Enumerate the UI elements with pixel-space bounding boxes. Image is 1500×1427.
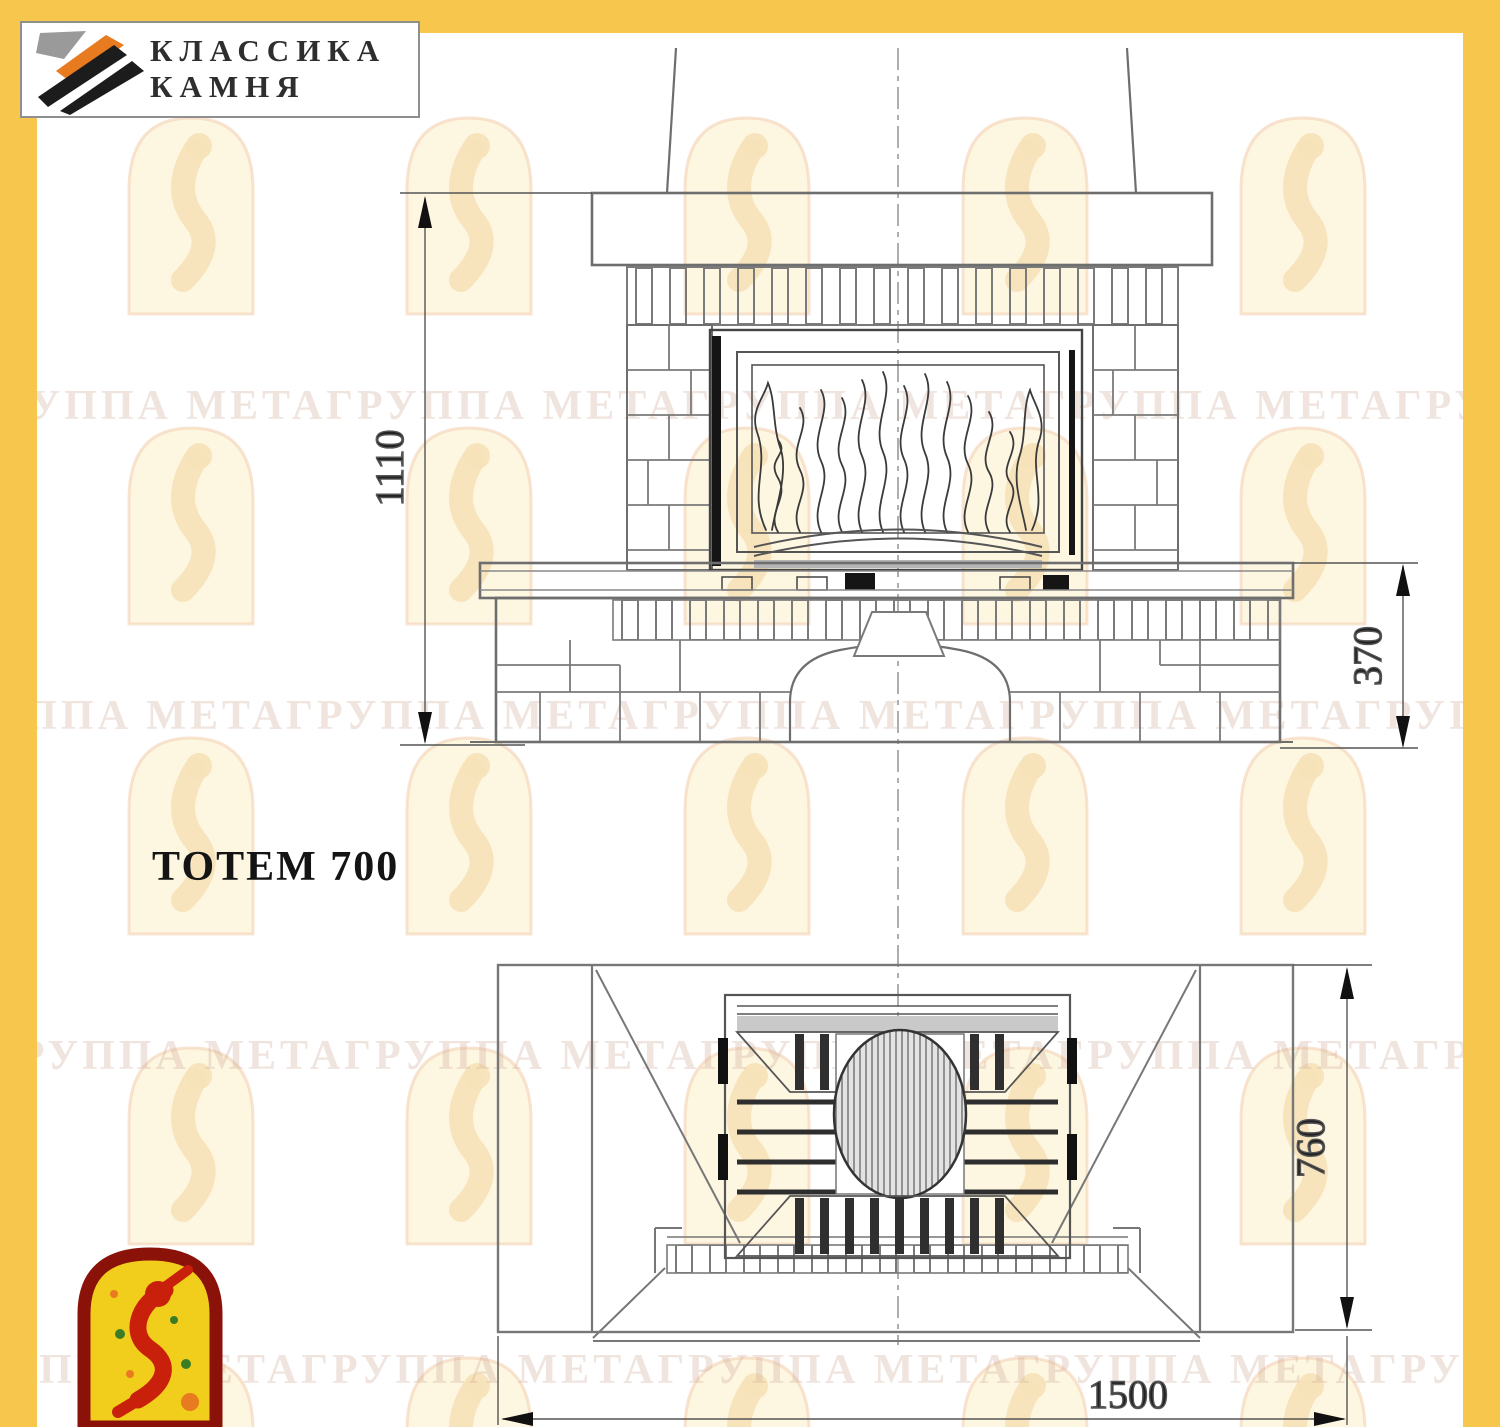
dimension-width-1500: 1500	[498, 1336, 1347, 1426]
firebox-plan	[718, 995, 1077, 1258]
company-logo: КЛАССИКА КАМНЯ	[20, 21, 420, 118]
base-masonry	[470, 598, 1293, 742]
dimension-plinth-370: 370	[1280, 563, 1418, 748]
page: ГРУППА МЕТАГРУППА МЕТАГРУППА МЕТАГРУППА …	[0, 0, 1500, 1427]
dim-label-370: 370	[1345, 626, 1390, 686]
plan-view	[498, 965, 1293, 1341]
frame-bar-right	[1463, 0, 1500, 1427]
dim-label-1500: 1500	[1088, 1372, 1168, 1417]
firebird-emblem-icon	[70, 1242, 230, 1427]
logo-stripes-icon	[34, 27, 146, 115]
logo-text: КЛАССИКА КАМНЯ	[150, 33, 386, 105]
firebox-insert	[710, 330, 1082, 590]
model-title: ТОТЕМ 700	[152, 843, 399, 891]
logo-line1: КЛАССИКА	[150, 33, 386, 69]
dimension-depth-760: 760	[1288, 965, 1372, 1330]
frame-bar-left	[0, 0, 37, 1427]
dimension-height-1110: 1110	[367, 193, 592, 745]
dim-label-760: 760	[1288, 1118, 1333, 1178]
flue-opening	[834, 1030, 966, 1198]
logo-line2: КАМНЯ	[150, 69, 386, 105]
dim-label-1110: 1110	[367, 429, 412, 506]
fireplace-drawing: 1110 370 760	[0, 0, 1500, 1427]
